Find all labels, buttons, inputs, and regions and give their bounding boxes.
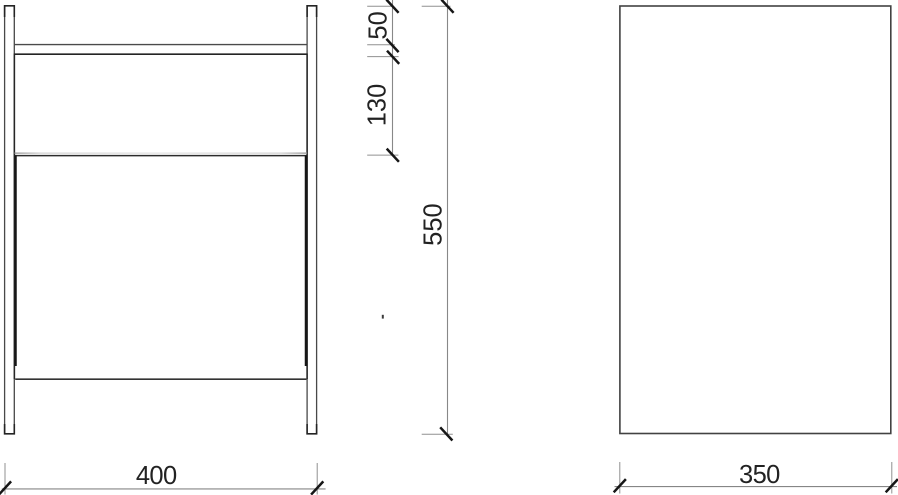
svg-text:550: 550: [420, 203, 448, 246]
svg-text:50: 50: [364, 11, 392, 39]
svg-text:130: 130: [364, 84, 392, 127]
svg-text:350: 350: [739, 461, 780, 489]
svg-text:400: 400: [136, 462, 177, 490]
